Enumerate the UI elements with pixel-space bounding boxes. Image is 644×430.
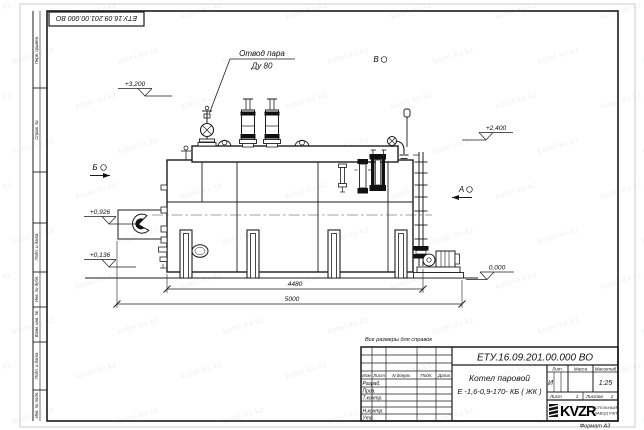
margin-label-sprav-no: Справ. № [34, 120, 39, 140]
svg-text:А: А [458, 185, 464, 194]
margin-label-inv-dubl: Инв. № дубл. [34, 276, 39, 302]
row-prov: Пров. [363, 389, 376, 395]
support-legs [180, 230, 407, 278]
row-razrab: Разраб. [363, 381, 381, 387]
water-level-gauge-3 [370, 150, 387, 191]
section-mark-b: Б [90, 163, 110, 178]
kvzr-logo-text: KVZR [560, 404, 597, 420]
steam-outlet-valve [198, 106, 216, 146]
svg-text:0,000: 0,000 [489, 265, 506, 272]
company-line2: ЗАВОД РЭП [595, 411, 618, 416]
list-label: Лист [549, 394, 562, 399]
water-level-gauge-1 [339, 164, 347, 192]
margin-label-inv-podl: Инв. № подл. [34, 392, 39, 419]
title-doc-number: ЕТУ.16.09.201.00.000 ВО [477, 353, 593, 364]
row-tkontr: Т.контр. [363, 396, 383, 402]
pump-foundation [414, 273, 464, 279]
row-nkontr: Н.контр. [363, 409, 384, 415]
col-izm: Изм [362, 373, 371, 378]
section-mark-a: А [452, 185, 472, 200]
elevation-marks: +3,200 +2,400 +0,926 +0,136 0,000 [84, 81, 514, 280]
section-mark-v: В [373, 55, 386, 64]
shell-top-tap [181, 146, 191, 160]
elevation-2400: +2,400 [462, 125, 513, 140]
massa-label: Масса [574, 367, 588, 372]
callout-leader-line [210, 59, 231, 113]
margin-label-podp-data-2: Подп. и дата [34, 352, 39, 380]
company-line1: КОТЕЛЬНЫЙ [593, 405, 618, 410]
burner-flame-icon [133, 214, 149, 233]
boiler-drawing-svg: Перв. примен. Справ. № Подп. и дата Инв.… [0, 0, 644, 430]
callout-text-line2: Ду 80 [251, 62, 273, 71]
elevation-0926: +0,926 [84, 209, 136, 224]
section-arrow-right-icon [103, 173, 110, 178]
kvzr-logo: KVZR КОТЕЛЬНЫЙ ЗАВОД РЭП [549, 404, 617, 420]
svg-text:+0,136: +0,136 [90, 252, 111, 259]
col-list: Лист [372, 373, 385, 378]
svg-text:5000: 5000 [285, 296, 300, 303]
scale-value: 1:25 [599, 380, 613, 387]
elevation-3200: +3,200 [118, 81, 172, 96]
steam-outlet-callout: Отвод пара Ду 80 [210, 49, 296, 113]
paper-edge [20, 4, 635, 427]
svg-text:+3,200: +3,200 [125, 81, 146, 88]
col-n-dokum: N докум. [392, 373, 411, 378]
listov-value: 2 [610, 394, 614, 399]
water-level-gauge-2 [355, 159, 372, 194]
margin-label-perv-primen: Перв. примен. [34, 36, 39, 65]
svg-text:+0,926: +0,926 [90, 209, 111, 216]
downcomer-pipe [413, 152, 429, 266]
product-name-line1: Котел паровой [469, 373, 530, 383]
margin-label-vzam-inv: Взам. инв. № [34, 310, 39, 337]
listov-label: Листов [585, 394, 603, 399]
col-data: Дата [437, 373, 451, 378]
list-value: 1 [576, 394, 579, 399]
callout-text-line1: Отвод пара [239, 49, 285, 58]
margin-label-podp-data-1: Подп. и дата [34, 233, 39, 261]
top-stamp-doc-number: ЕТУ.16.09.201.00.000 ВО [55, 14, 137, 21]
svg-text:+2,400: +2,400 [486, 125, 507, 132]
row-utv: Утв. [363, 416, 374, 422]
product-name-line2: Е -1,6-0,9-170- КБ ( ЖК ) [457, 387, 542, 396]
boiler-side-view [85, 99, 478, 278]
lit-value: И [548, 380, 554, 387]
drawing-sheet: kotel-kv.kzkotel-kv.kzkotel-kv.kzkotel-k… [0, 0, 644, 430]
format-label: Формат А3 [580, 424, 611, 430]
reference-note: Все размеры для справок [365, 337, 432, 343]
col-podp: Подп. [420, 373, 432, 378]
safety-valve-1 [240, 99, 257, 147]
shell-front-fittings [159, 185, 168, 268]
masshtab-label: Масштаб [595, 367, 617, 372]
elevation-0136: +0,136 [84, 252, 136, 267]
elevation-0000: 0,000 [466, 265, 514, 280]
section-arrow-left-icon [452, 195, 459, 200]
lit-label: Лит. [551, 367, 563, 372]
svg-text:В: В [373, 55, 379, 64]
svg-text:4480: 4480 [288, 281, 303, 288]
section-marks: Б В А [90, 55, 472, 200]
burner [118, 185, 167, 268]
manhole [192, 245, 208, 258]
safety-valve-2 [264, 99, 281, 147]
title-block: Изм Лист N докум. Подп. Дата Разраб. Про… [361, 347, 618, 422]
svg-text:Б: Б [92, 163, 97, 172]
